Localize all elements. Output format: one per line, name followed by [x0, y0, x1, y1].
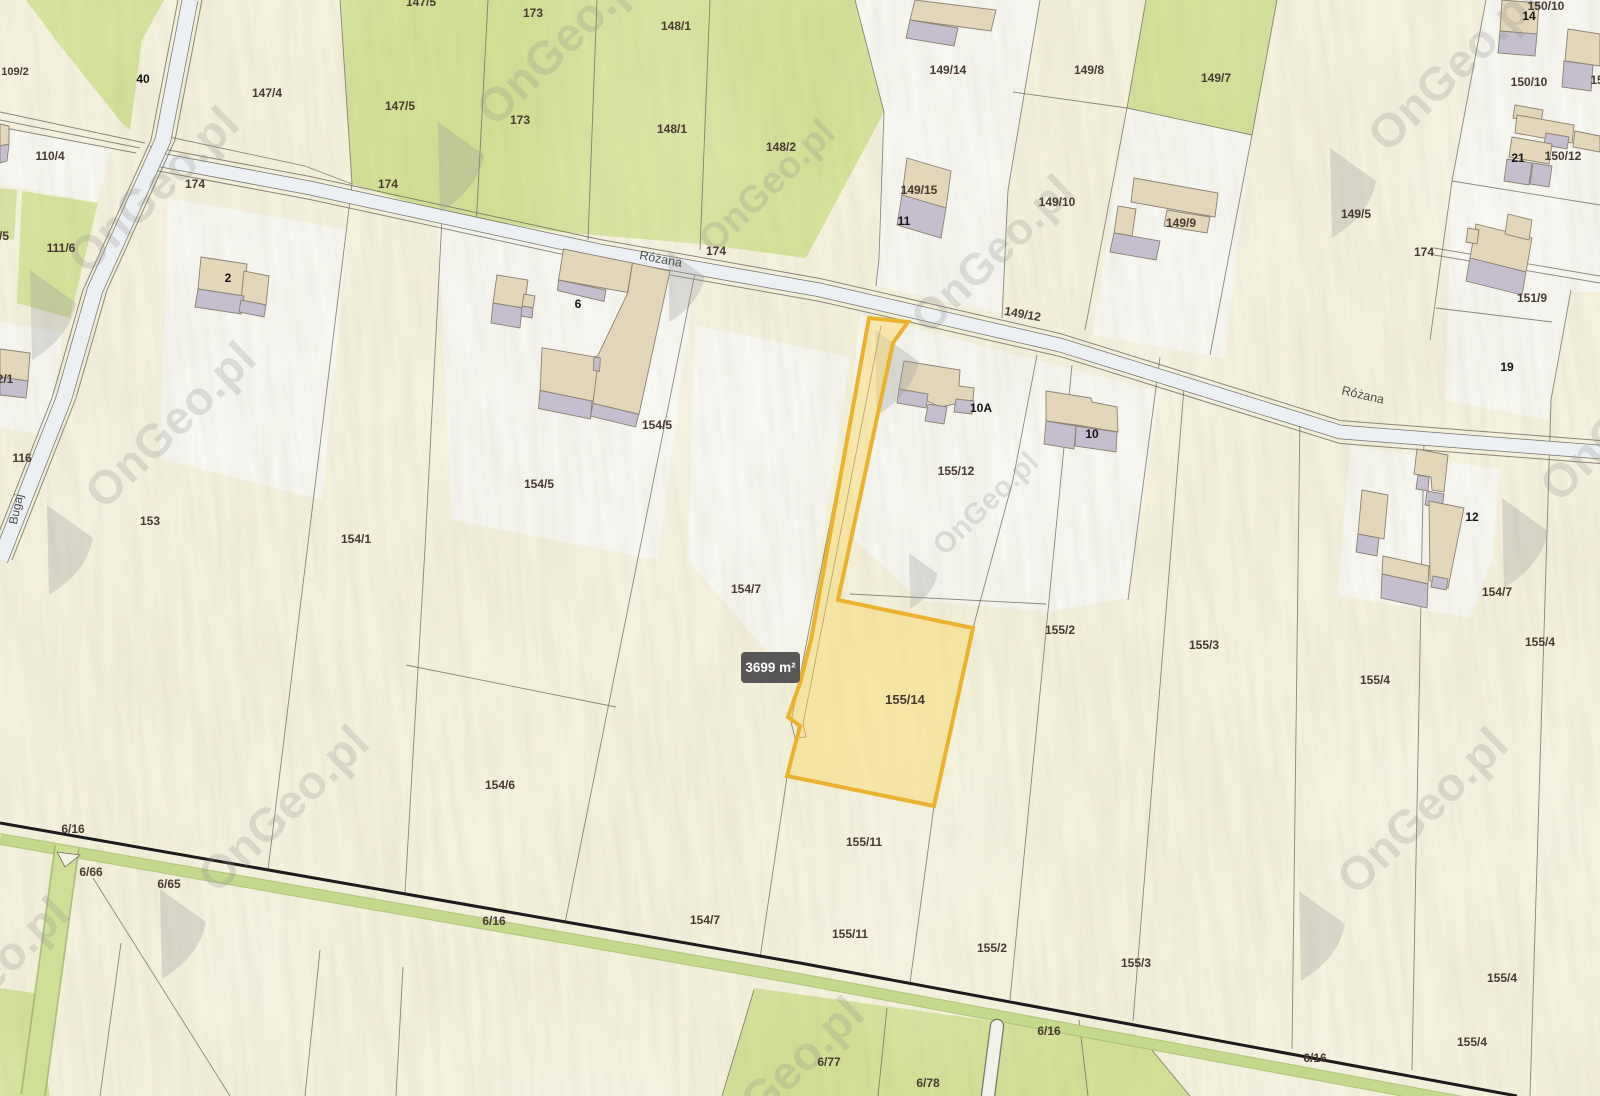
svg-text:149/7: 149/7 — [1201, 71, 1231, 85]
svg-text:174: 174 — [378, 177, 398, 191]
svg-text:2: 2 — [225, 271, 232, 285]
svg-text:10A: 10A — [970, 401, 992, 415]
svg-text:12: 12 — [1465, 510, 1479, 524]
svg-text:154/7: 154/7 — [1482, 585, 1512, 599]
svg-text:40: 40 — [136, 72, 150, 86]
svg-text:155/3: 155/3 — [1121, 956, 1151, 970]
svg-text:155/11: 155/11 — [846, 835, 882, 849]
svg-text:6/66: 6/66 — [79, 865, 103, 879]
svg-text:173: 173 — [510, 113, 530, 127]
svg-text:15: 15 — [1590, 73, 1600, 87]
svg-text:174: 174 — [185, 177, 205, 191]
svg-text:149/8: 149/8 — [1074, 63, 1104, 77]
svg-text:149/5: 149/5 — [1341, 207, 1371, 221]
svg-text:109/2: 109/2 — [1, 66, 29, 78]
svg-text:148/2: 148/2 — [766, 140, 796, 154]
svg-text:6: 6 — [575, 297, 582, 311]
svg-text:149/10: 149/10 — [1039, 195, 1076, 209]
svg-text:3699 m²: 3699 m² — [745, 660, 796, 675]
svg-text:173: 173 — [523, 6, 543, 20]
svg-text:110/4: 110/4 — [35, 149, 65, 163]
svg-text:155/4: 155/4 — [1487, 971, 1517, 985]
svg-text:/5: /5 — [0, 229, 9, 243]
svg-text:147/4: 147/4 — [252, 86, 282, 100]
svg-text:155/12: 155/12 — [938, 464, 975, 478]
svg-text:149/9: 149/9 — [1166, 216, 1196, 230]
svg-text:6/16: 6/16 — [1303, 1051, 1327, 1065]
svg-text:116: 116 — [12, 451, 32, 465]
svg-text:154/5: 154/5 — [642, 418, 672, 432]
svg-text:154/1: 154/1 — [341, 532, 371, 546]
svg-text:174: 174 — [1414, 245, 1434, 259]
svg-text:155/2: 155/2 — [977, 941, 1007, 955]
svg-text:155/4: 155/4 — [1457, 1035, 1487, 1049]
svg-text:149/14: 149/14 — [930, 63, 967, 77]
svg-text:151/9: 151/9 — [1517, 291, 1547, 305]
svg-text:150/12: 150/12 — [1545, 149, 1582, 163]
svg-text:111/6: 111/6 — [47, 241, 76, 255]
svg-text:155/14: 155/14 — [885, 692, 926, 707]
svg-text:150/10: 150/10 — [1511, 75, 1548, 89]
svg-text:155/4: 155/4 — [1525, 635, 1555, 649]
svg-text:6/16: 6/16 — [1037, 1024, 1061, 1038]
svg-text:154/6: 154/6 — [485, 778, 515, 792]
svg-text:155/2: 155/2 — [1045, 623, 1075, 637]
svg-text:155/3: 155/3 — [1189, 638, 1219, 652]
svg-text:153: 153 — [140, 514, 160, 528]
svg-text:148/1: 148/1 — [657, 122, 687, 136]
svg-text:147/5: 147/5 — [406, 0, 436, 9]
svg-text:154/7: 154/7 — [731, 582, 761, 596]
svg-text:6/65: 6/65 — [157, 877, 181, 891]
svg-text:2/1: 2/1 — [0, 372, 14, 386]
svg-text:6/78: 6/78 — [916, 1076, 940, 1090]
svg-text:149/15: 149/15 — [901, 183, 938, 197]
svg-text:6/77: 6/77 — [817, 1055, 841, 1069]
svg-text:147/5: 147/5 — [385, 99, 415, 113]
svg-text:154/5: 154/5 — [524, 477, 554, 491]
svg-text:6/16: 6/16 — [482, 914, 506, 928]
svg-text:11: 11 — [898, 214, 911, 228]
svg-text:10: 10 — [1085, 427, 1099, 441]
svg-text:155/11: 155/11 — [832, 927, 868, 941]
svg-text:154/7: 154/7 — [690, 913, 720, 927]
svg-text:148/1: 148/1 — [661, 19, 691, 33]
svg-text:174: 174 — [706, 244, 726, 258]
svg-text:6/16: 6/16 — [61, 822, 85, 836]
svg-text:155/4: 155/4 — [1360, 673, 1390, 687]
svg-text:14: 14 — [1522, 9, 1536, 23]
svg-text:19: 19 — [1500, 360, 1514, 374]
svg-text:21: 21 — [1511, 151, 1525, 165]
